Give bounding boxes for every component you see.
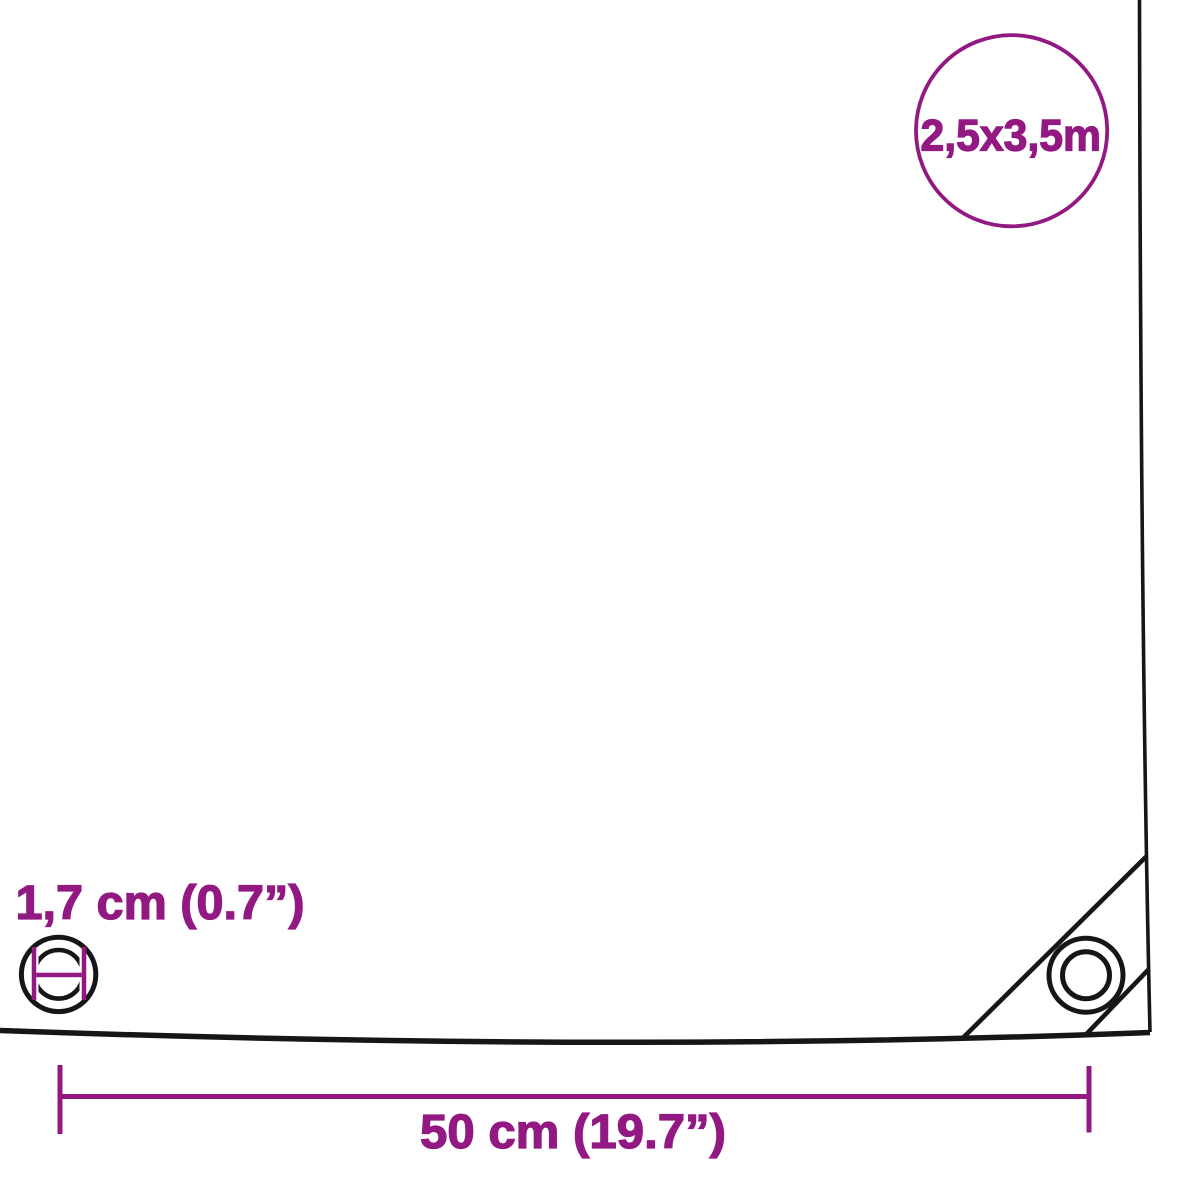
svg-text:1,7 cm (0.7”): 1,7 cm (0.7”) xyxy=(16,877,305,930)
svg-text:50 cm (19.7”): 50 cm (19.7”) xyxy=(420,1106,726,1159)
svg-text:2,5x3,5m: 2,5x3,5m xyxy=(921,112,1102,161)
